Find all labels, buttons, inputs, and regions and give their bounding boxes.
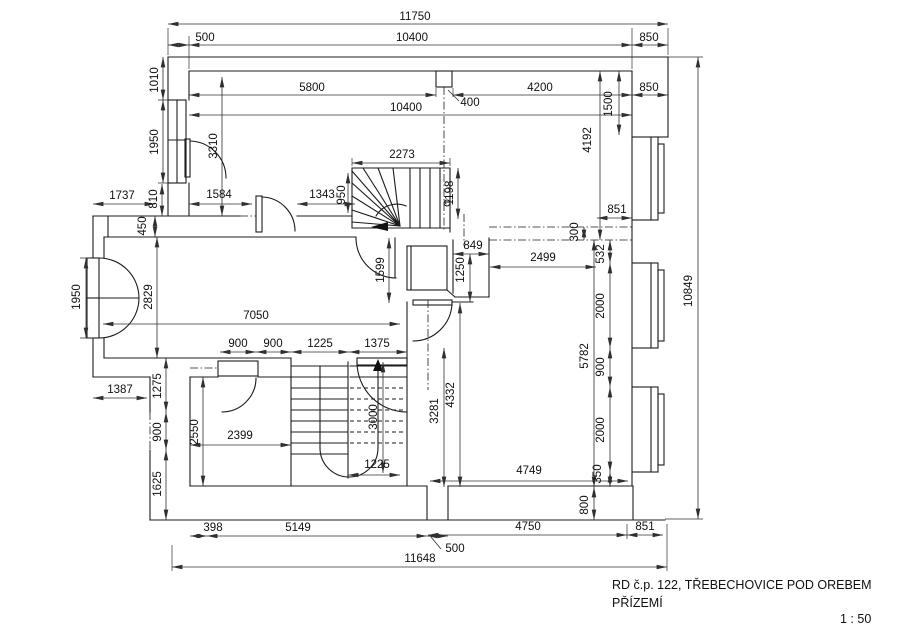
dim-1599: 1599 [375,257,387,283]
drawing-subtitle: PŘÍZEMÍ [612,595,663,610]
dim-1225-a: 1225 [307,338,333,350]
drawing-title: RD č.p. 122, TŘEBECHOVICE POD OREBEM [612,577,872,592]
door-right-room [413,300,452,341]
winder-staircase [352,168,450,232]
dim-2000-a: 2000 [595,293,607,319]
dim-2000-b: 2000 [595,417,607,443]
floor-plan-canvas: 11750 500 10400 850 5800 4200 850 10400 … [0,0,915,641]
dim-1010: 1010 [149,67,161,93]
dim-3310: 3310 [208,133,220,159]
dim-4749: 4749 [516,465,542,477]
dim-1500: 1500 [603,91,615,117]
door-hall [256,196,295,232]
door-room-lower-left [218,361,258,412]
dim-1625: 1625 [152,471,164,497]
dim-10400-a: 10400 [396,32,428,44]
dim-900-a: 900 [228,338,247,350]
dim-4200: 4200 [527,82,553,94]
dim-7050: 7050 [243,310,269,322]
dim-4332: 4332 [445,382,457,408]
dim-900-right: 900 [595,357,607,376]
dim-1250: 1250 [455,257,467,283]
dim-1275: 1275 [152,373,164,399]
dim-900-b: 900 [263,338,282,350]
dim-1343: 1343 [309,189,335,201]
exterior-walls [93,57,668,520]
dim-4192: 4192 [582,127,594,153]
interior-walls [104,216,489,486]
dim-850-a: 850 [639,32,658,44]
shaft-block [407,246,447,290]
dim-1225-b: 1225 [364,459,390,471]
dim-1584: 1584 [206,189,232,201]
dim-800: 800 [579,495,591,514]
dim-2273: 2273 [389,149,415,161]
dim-1950-door: 1950 [71,284,83,310]
dimension-labels: 11750 500 10400 850 5800 4200 850 10400 … [71,11,695,565]
chimney-block [436,71,452,87]
dim-849: 849 [463,240,482,252]
dim-532: 532 [595,244,607,263]
dim-350: 350 [592,464,604,483]
dim-851-b: 851 [635,521,654,533]
dim-950: 950 [336,185,348,204]
dim-2829: 2829 [143,284,155,310]
dim-1387: 1387 [107,384,133,396]
dim-5782: 5782 [579,343,591,369]
dim-500-top: 500 [195,32,214,44]
window-bay-1 [632,137,664,220]
dim-450: 450 [137,216,149,235]
door-left-double [87,258,139,338]
title-block: RD č.p. 122, TŘEBECHOVICE POD OREBEM PŘÍ… [612,577,872,626]
dim-1198: 1198 [444,181,456,206]
dim-400-chimney: 400 [460,97,479,109]
dim-2550: 2550 [189,419,201,445]
dim-10400-b: 10400 [390,102,422,114]
window-bay-3 [632,387,664,472]
dim-810: 810 [148,189,160,208]
dim-4750: 4750 [515,521,541,533]
dim-2399: 2399 [227,430,253,442]
dim-1375: 1375 [364,338,390,350]
dim-11750: 11750 [399,11,430,23]
dim-2499: 2499 [530,252,556,264]
dim-398: 398 [203,522,222,534]
dim-10849: 10849 [683,275,695,307]
dim-11648: 11648 [404,553,435,565]
dim-5149: 5149 [285,522,311,534]
dim-3000: 3000 [368,404,380,430]
dim-300: 300 [569,222,581,241]
dim-851-step: 851 [607,204,626,216]
dim-1737: 1737 [109,190,135,202]
dim-3281: 3281 [429,398,441,424]
dim-500-bottom: 500 [445,543,464,555]
dim-850-b: 850 [639,82,658,94]
drawing-scale: 1 : 50 [840,612,871,626]
dim-1950-window: 1950 [149,129,161,155]
dim-900-c: 900 [152,422,164,441]
dim-5800: 5800 [299,82,325,94]
window-bay-2 [632,263,664,348]
